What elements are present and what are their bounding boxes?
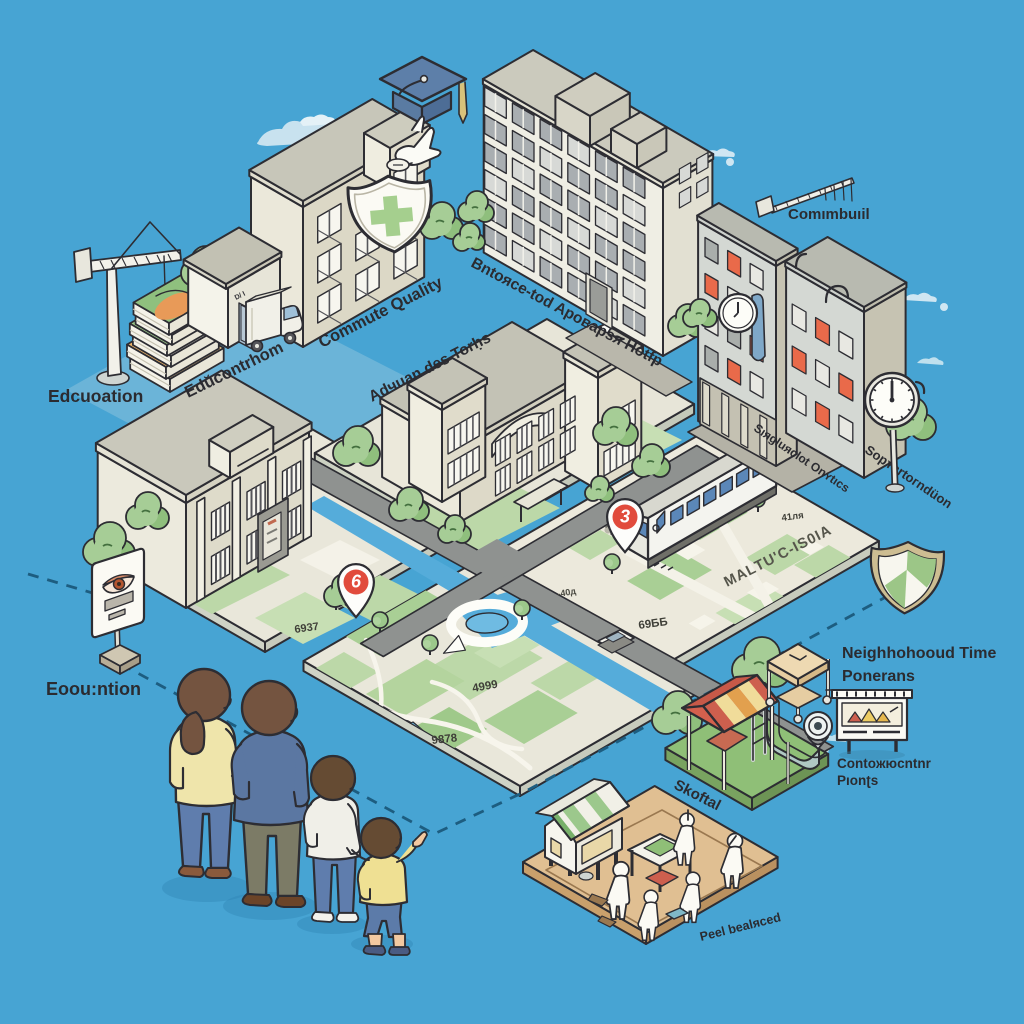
svg-text:Comımbuıil: Comımbuıil <box>788 206 870 223</box>
svg-text:Eoou:ntion: Eoou:ntion <box>46 679 141 699</box>
svg-text:6: 6 <box>351 572 362 592</box>
svg-text:Neighhohooud Time: Neighhohooud Time <box>842 645 996 662</box>
svg-text:Pıonʈs: Pıonʈs <box>837 773 878 788</box>
svg-text:Ponerаns: Ponerаns <box>842 668 915 685</box>
svg-text:3: 3 <box>620 507 630 527</box>
svg-text:Edcuoation: Edcuoation <box>48 386 143 406</box>
svg-text:Contoжюcntnr: Contoжюcntnr <box>837 756 932 771</box>
